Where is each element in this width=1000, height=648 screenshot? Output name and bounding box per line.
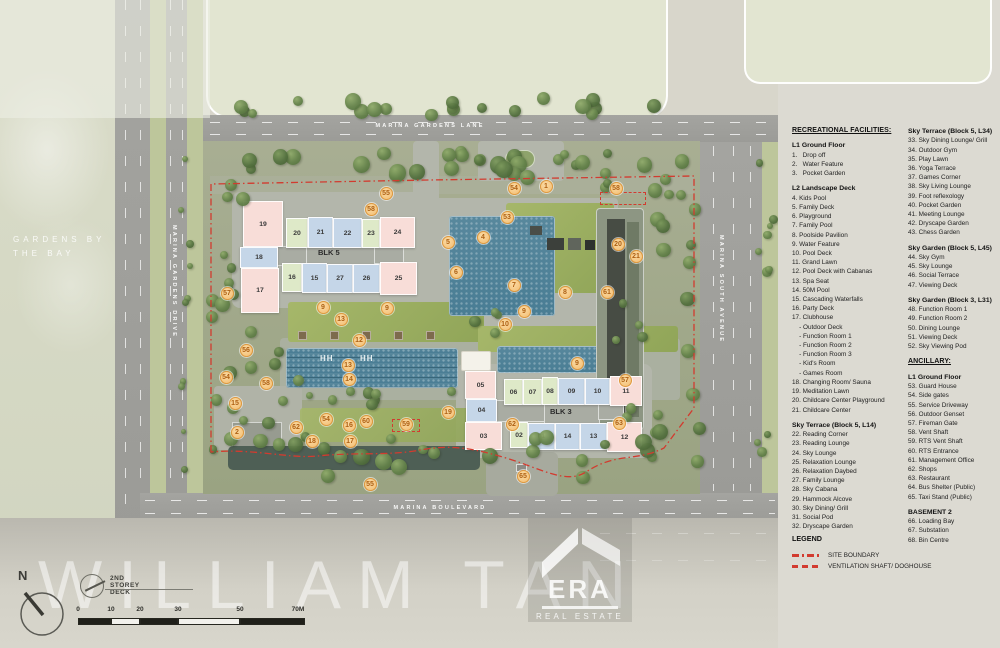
facility-marker: 10 <box>499 318 512 331</box>
legend-item: 41. Meeting Lounge <box>908 210 1000 219</box>
tree <box>377 147 390 160</box>
legend-item: 20. Childcare Center Playground <box>792 396 904 405</box>
facility-marker: 17 <box>344 435 357 448</box>
tree <box>469 316 481 328</box>
tree <box>409 164 425 180</box>
tree <box>576 454 589 467</box>
unit-cell: 26 <box>353 264 380 293</box>
legend-item: 29. Hammock Alcove <box>792 495 904 504</box>
deck-note-underline <box>105 589 193 590</box>
legend-item: 9. Water Feature <box>792 240 904 249</box>
legend-item: - Function Room 1 <box>792 332 904 341</box>
legend-item: 10. Pool Deck <box>792 249 904 258</box>
legend-item: 66. Loading Bay <box>908 517 1000 526</box>
lane-line <box>733 146 734 491</box>
legend-item: 7. Family Pool <box>792 221 904 230</box>
tree <box>273 149 288 164</box>
legend-item: 15. Cascading Waterfalls <box>792 295 904 304</box>
tree <box>539 430 554 445</box>
tree <box>428 447 440 459</box>
unit-cell: 17 <box>241 268 279 313</box>
facility-marker: 9 <box>571 357 584 370</box>
tree <box>755 248 762 255</box>
legend-item: 59. RTS Vent Shaft <box>908 437 1000 446</box>
facility-marker: 54 <box>508 182 521 195</box>
unit-cell: 25 <box>380 262 417 295</box>
unit-cell: 15 <box>302 263 327 293</box>
tree <box>477 103 487 113</box>
legend-item: 51. Viewing Deck <box>908 333 1000 342</box>
era-logo-subtitle: REAL ESTATE <box>528 612 632 621</box>
tree <box>321 469 335 483</box>
tree <box>660 174 671 185</box>
tree <box>603 149 612 158</box>
tree <box>380 103 392 115</box>
area-label-line1: GARDENS BY <box>13 235 105 244</box>
scale-tick-label: 0 <box>76 606 80 613</box>
tree <box>600 168 611 179</box>
legend-item: 40. Pocket Garden <box>908 201 1000 210</box>
tree <box>318 442 331 455</box>
tree <box>371 389 381 399</box>
tree <box>425 109 438 122</box>
area-label-line2: THE BAY <box>13 249 105 258</box>
tree <box>637 332 648 343</box>
facility-marker: 13 <box>335 313 348 326</box>
road-label-marina-gardens-lane: MARINA GARDENS LANE <box>375 123 484 129</box>
tree <box>576 471 590 485</box>
facility-marker: 57 <box>619 374 632 387</box>
era-logo: ERA REAL ESTATE <box>528 518 632 622</box>
legend-item: 17. Clubhouse <box>792 313 904 322</box>
tree <box>537 92 550 105</box>
unit-cell: 20 <box>286 218 308 248</box>
legend-item: 60. RTS Entrance <box>908 447 1000 456</box>
tree <box>756 159 763 166</box>
tree <box>234 100 248 114</box>
key-label: SITE BOUNDARY <box>828 552 879 559</box>
fade-veil <box>0 0 210 118</box>
lane-line <box>145 500 775 501</box>
legend-item: 37. Games Corner <box>908 173 1000 182</box>
facility-marker: 58 <box>365 203 378 216</box>
tree <box>560 150 569 159</box>
legend-item: 23. Reading Lounge <box>792 439 904 448</box>
legend-item: - Kid's Room <box>792 359 904 368</box>
legend-item: 65. Taxi Stand (Public) <box>908 493 1000 502</box>
facility-marker: 59 <box>400 418 413 431</box>
facility-marker: 12 <box>353 334 366 347</box>
unit-cell: 08 <box>542 377 558 405</box>
legend-item: - Function Room 3 <box>792 350 904 359</box>
unit-cell: 27 <box>327 264 353 293</box>
facility-marker: 55 <box>364 478 377 491</box>
facility-marker: 62 <box>506 418 519 431</box>
legend-item: - Outdoor Deck <box>792 323 904 332</box>
tree <box>366 399 378 411</box>
pool-lane-mark: HH <box>320 354 334 363</box>
tree <box>418 445 428 455</box>
block-label: BLK 5 <box>318 248 340 257</box>
lane-line <box>145 513 775 514</box>
legend-item: 22. Reading Corner <box>792 430 904 439</box>
scale-segment <box>140 618 178 625</box>
tree <box>575 155 590 170</box>
facility-marker: 4 <box>477 231 490 244</box>
legend-item: 42. Dryscape Garden <box>908 219 1000 228</box>
legend-item: 21. Childcare Center <box>792 406 904 415</box>
facility-marker: 53 <box>501 211 514 224</box>
legend-column: Sky Terrace (Block 5, L34)33. Sky Dining… <box>908 127 1000 551</box>
legend-item: 4. Kids Pool <box>792 194 904 203</box>
tree <box>612 336 620 344</box>
tree <box>211 394 222 405</box>
era-logo-rule <box>542 606 618 609</box>
legend-item: - Function Room 2 <box>792 341 904 350</box>
legend-item: 52. Sky Viewing Pod <box>908 342 1000 351</box>
cabana <box>426 331 435 340</box>
legend-item: 55. Service Driveway <box>908 401 1000 410</box>
facility-marker: 5 <box>442 236 455 249</box>
legend-item: 5. Family Deck <box>792 203 904 212</box>
facility-marker: 19 <box>442 406 455 419</box>
legend-item: 16. Party Deck <box>792 304 904 313</box>
lane-line <box>210 122 772 123</box>
facility-marker: 63 <box>613 417 626 430</box>
facility-marker: 58 <box>260 377 273 390</box>
legend-item: 43. Chess Garden <box>908 228 1000 237</box>
legend-item: 14. 50M Pool <box>792 286 904 295</box>
scale-tick-label: 10 <box>107 606 114 613</box>
tree <box>182 299 189 306</box>
unit-cell: 24 <box>380 217 415 248</box>
tree <box>375 453 392 470</box>
road-marina-south-avenue <box>700 142 762 495</box>
legend-heading: Sky Terrace (Block 5, L34) <box>908 127 1000 136</box>
unit-cell: 16 <box>282 263 302 292</box>
legend-item: 6. Playground <box>792 212 904 221</box>
legend-item: 38. Sky Living Lounge <box>908 182 1000 191</box>
legend-item: 58. Vent Shaft <box>908 428 1000 437</box>
tree <box>693 422 706 435</box>
legend-item: 33. Sky Dining Lounge/ Grill <box>908 136 1000 145</box>
legend-column: RECREATIONAL FACILITIES:L1 Ground Floor1… <box>792 126 904 537</box>
tree <box>764 431 771 438</box>
legend-item: 56. Outdoor Genset <box>908 410 1000 419</box>
tree <box>242 153 257 168</box>
key-line-swatch <box>792 565 822 568</box>
lane-line <box>750 146 751 491</box>
facility-marker: 9 <box>518 305 531 318</box>
area-label-gardens-by-the-bay: GARDENS BY THE BAY <box>13 235 105 258</box>
unit-cell: 22 <box>333 218 362 248</box>
legend-item: 24. Sky Lounge <box>792 449 904 458</box>
legend-heading: BASEMENT 2 <box>908 508 1000 517</box>
legend-heading: ANCILLARY: <box>908 357 1000 366</box>
north-arrow: N <box>14 568 76 642</box>
legend-item: 46. Social Terrace <box>908 271 1000 280</box>
legend-item: 62. Shops <box>908 465 1000 474</box>
lane-line <box>713 146 714 491</box>
legend-item: 32. Dryscape Garden <box>792 522 904 531</box>
unit-cell: 04 <box>466 399 497 422</box>
era-house-icon <box>528 518 632 582</box>
skylight <box>568 238 581 250</box>
tree <box>765 266 773 274</box>
tree <box>689 203 702 216</box>
scale-segment <box>78 618 111 625</box>
facility-marker: 13 <box>342 359 355 372</box>
skylight <box>547 238 564 250</box>
tree <box>274 347 284 357</box>
legend-heading: L1 Ground Floor <box>908 373 1000 382</box>
tree <box>637 157 653 173</box>
tree <box>635 321 643 329</box>
scale-segment <box>178 618 240 625</box>
tree <box>236 192 250 206</box>
facility-marker: 20 <box>612 238 625 251</box>
facility-marker: 1 <box>540 180 553 193</box>
facility-marker: 65 <box>517 470 530 483</box>
tree <box>757 447 767 457</box>
skylight <box>585 240 595 250</box>
road-marina-gardens-lane <box>203 115 780 142</box>
key-line-swatch <box>792 554 822 557</box>
legend-item: 31. Social Pod <box>792 513 904 522</box>
road-label-marina-gardens-drive: MARINA GARDENS DRIVE <box>171 225 177 338</box>
site-plan: HH HH 19181720212223241615272625BLK 5050… <box>0 0 1000 648</box>
legend-item: - Games Room <box>792 369 904 378</box>
key-label: VENTILATION SHAFT/ DOGHOUSE <box>828 563 931 570</box>
deck-note-text: 2ND STOREY DECK <box>110 575 140 596</box>
tree <box>575 99 591 115</box>
facility-marker: 18 <box>306 435 319 448</box>
facility-marker: 16 <box>343 419 356 432</box>
scale-bar: 01020305070M <box>70 606 320 632</box>
legend-item: 19. Meditation Lawn <box>792 387 904 396</box>
tree <box>664 190 674 200</box>
unit-cell: 10 <box>585 378 610 405</box>
unit-cell: 05 <box>465 371 496 399</box>
tree <box>187 263 193 269</box>
legend-item: 49. Function Room 2 <box>908 314 1000 323</box>
north-arrow-icon <box>14 580 74 640</box>
legend-item: 8. Poolside Pavilion <box>792 231 904 240</box>
tree <box>248 109 257 118</box>
facility-marker: 14 <box>343 373 356 386</box>
legend-key: LEGEND SITE BOUNDARYVENTILATION SHAFT/ D… <box>792 534 931 572</box>
tree <box>278 396 288 406</box>
tree <box>656 219 670 233</box>
legend-item: 25. Relaxation Lounge <box>792 458 904 467</box>
tree <box>652 424 668 440</box>
legend-item: 11. Grand Lawn <box>792 258 904 267</box>
scale-tick-label: 50 <box>236 606 243 613</box>
legend-item: 30. Sky Dining/ Grill <box>792 504 904 513</box>
unit-cell: 09 <box>558 378 585 405</box>
facility-marker: 60 <box>360 415 373 428</box>
tree <box>635 434 651 450</box>
facility-marker: 6 <box>450 266 463 279</box>
tree <box>455 149 469 163</box>
legend-item: 47. Viewing Deck <box>908 281 1000 290</box>
legend-item: 34. Outdoor Gym <box>908 146 1000 155</box>
scale-segment <box>111 618 140 625</box>
tree <box>686 240 696 250</box>
legend-item: 50. Dining Lounge <box>908 324 1000 333</box>
tree <box>389 164 406 181</box>
tree <box>683 256 696 269</box>
legend-item: 45. Sky Lounge <box>908 262 1000 271</box>
unit-cell: 19 <box>243 201 283 247</box>
tree <box>367 102 382 117</box>
tree <box>346 387 354 395</box>
legend-heading: L1 Ground Floor <box>792 141 904 150</box>
cabana <box>298 331 307 340</box>
legend-item: 35. Play Lawn <box>908 155 1000 164</box>
facility-marker: 57 <box>221 287 234 300</box>
tree <box>306 392 313 399</box>
road-label-marina-south-avenue: MARINA SOUTH AVENUE <box>718 235 724 343</box>
legend-item: 64. Bus Shelter (Public) <box>908 483 1000 492</box>
tree <box>526 445 540 459</box>
legend-item: 53. Guard House <box>908 382 1000 391</box>
legend-heading: RECREATIONAL FACILITIES: <box>792 126 904 135</box>
tree <box>626 403 636 413</box>
unit-cell: 18 <box>240 247 278 268</box>
legend-heading: Sky Garden (Block 5, L45) <box>908 244 1000 253</box>
tree <box>225 179 237 191</box>
facility-marker: 56 <box>240 344 253 357</box>
tree <box>239 416 248 425</box>
legend-item: 3. Pocket Garden <box>792 169 904 178</box>
road-label-marina-boulevard: MARINA BOULEVARD <box>394 505 487 511</box>
legend-item: 48. Function Room 1 <box>908 305 1000 314</box>
facility-marker: 58 <box>610 182 623 195</box>
legend-item: 27. Family Lounge <box>792 476 904 485</box>
cabana <box>330 331 339 340</box>
facility-marker: 15 <box>229 397 242 410</box>
legend-item: 28. Sky Cabana <box>792 485 904 494</box>
unit-cell: 21 <box>308 217 333 248</box>
legend-item: 2. Water Feature <box>792 160 904 169</box>
tree <box>178 383 185 390</box>
legend-item: 61. Management Office <box>908 456 1000 465</box>
facility-marker: 9 <box>317 301 330 314</box>
ventilation-doghouse <box>600 192 646 205</box>
block-label: BLK 3 <box>550 407 572 416</box>
unit-cell: 23 <box>362 219 380 248</box>
tree <box>680 292 694 306</box>
legend-heading: Sky Terrace (Block 5, L14) <box>792 421 904 430</box>
tree <box>520 170 535 185</box>
tree <box>273 438 285 450</box>
legend-item: 12. Pool Deck with Cabanas <box>792 267 904 276</box>
tree <box>227 263 237 273</box>
facility-marker: 55 <box>380 187 393 200</box>
tree <box>447 387 455 395</box>
tree <box>209 445 217 453</box>
facility-marker: 8 <box>559 286 572 299</box>
tree <box>386 434 396 444</box>
legend-heading: Sky Garden (Block 3, L31) <box>908 296 1000 305</box>
cabana <box>394 331 403 340</box>
legend-key-items: SITE BOUNDARYVENTILATION SHAFT/ DOGHOUSE <box>792 550 931 572</box>
tree <box>648 183 663 198</box>
facility-marker: 9 <box>381 302 394 315</box>
tree <box>495 161 513 179</box>
scale-segment <box>240 618 305 625</box>
pool-lane-mark: HH <box>360 354 374 363</box>
tree <box>474 155 484 165</box>
legend-key-item: VENTILATION SHAFT/ DOGHOUSE <box>792 561 931 572</box>
tree <box>186 240 194 248</box>
scale-tick-label: 70M <box>292 606 305 613</box>
facility-marker: 2 <box>231 426 244 439</box>
tree <box>245 361 257 373</box>
tree <box>353 156 370 173</box>
tree <box>691 455 703 467</box>
facility-marker: 54 <box>220 371 233 384</box>
tree <box>215 297 230 312</box>
era-logo-name: ERA <box>528 574 632 605</box>
legend-item: 13. Spa Seat <box>792 277 904 286</box>
unit-cell: 14 <box>555 423 580 450</box>
tree <box>220 251 228 259</box>
legend-item: 63. Restaurant <box>908 474 1000 483</box>
legend-key-item: SITE BOUNDARY <box>792 550 931 561</box>
facility-marker: 62 <box>290 421 303 434</box>
facility-marker: 61 <box>601 286 614 299</box>
unit-cell: 03 <box>465 422 502 450</box>
tree <box>656 243 670 257</box>
unit-cell: 07 <box>523 379 542 405</box>
legend-item: 26. Relaxation Daybed <box>792 467 904 476</box>
legend-item: 57. Fireman Gate <box>908 419 1000 428</box>
legend-item: 36. Yoga Terrace <box>908 164 1000 173</box>
scale-tick-label: 20 <box>136 606 143 613</box>
unit-cell: 06 <box>504 379 523 405</box>
tree <box>653 410 663 420</box>
tree <box>262 417 275 430</box>
tree <box>288 437 303 452</box>
legend-item: 18. Changing Room/ Sauna <box>792 378 904 387</box>
facility-marker: 7 <box>508 279 521 292</box>
scale-tick-label: 30 <box>174 606 181 613</box>
tree <box>619 299 627 307</box>
facility-marker: 54 <box>320 413 333 426</box>
tree <box>686 388 699 401</box>
skylight <box>530 226 542 235</box>
tree <box>769 215 778 224</box>
legend-item: 54. Side gates <box>908 391 1000 400</box>
facility-marker: 21 <box>630 250 643 263</box>
legend-item: 44. Sky Gym <box>908 253 1000 262</box>
legend-heading: L2 Landscape Deck <box>792 184 904 193</box>
poolside-pavilion <box>461 351 491 371</box>
tree <box>446 96 459 109</box>
legend-item: 1. Drop off <box>792 151 904 160</box>
tree <box>681 344 695 358</box>
lane-line <box>210 134 772 135</box>
legend-key-title: LEGEND <box>792 534 931 543</box>
vacant-parcel-northeast <box>744 0 992 84</box>
tree <box>763 231 771 239</box>
tree <box>222 192 233 203</box>
legend-item: 39. Foot reflexology <box>908 192 1000 201</box>
